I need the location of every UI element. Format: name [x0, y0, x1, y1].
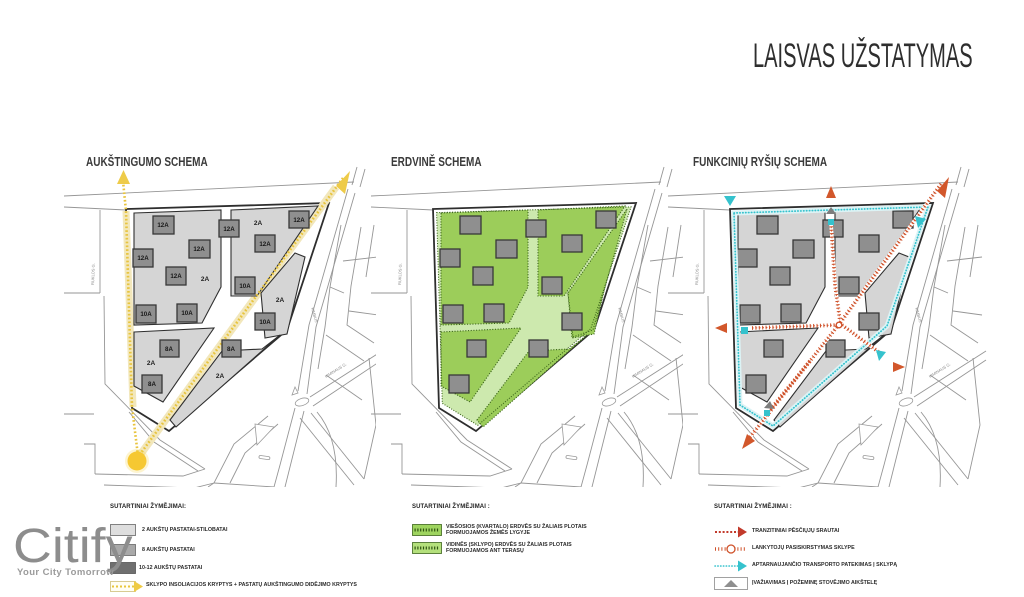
svg-text:10A: 10A — [181, 310, 193, 317]
svg-text:2A: 2A — [254, 220, 263, 227]
svg-text:12A: 12A — [293, 217, 305, 224]
svg-text:12A: 12A — [170, 273, 182, 280]
svg-text:10A: 10A — [239, 283, 251, 290]
svg-text:2A: 2A — [147, 360, 156, 367]
svg-text:12A: 12A — [193, 246, 205, 253]
svg-text:12A: 12A — [259, 241, 271, 248]
svg-text:10A: 10A — [259, 319, 271, 326]
svg-text:2A: 2A — [216, 373, 225, 380]
svg-text:12A: 12A — [223, 226, 235, 233]
svg-text:12A: 12A — [137, 255, 149, 262]
svg-text:2A: 2A — [276, 297, 285, 304]
svg-text:8A: 8A — [227, 346, 235, 353]
svg-text:12A: 12A — [157, 222, 169, 229]
svg-text:8A: 8A — [165, 346, 173, 353]
svg-text:8A: 8A — [148, 381, 156, 388]
svg-text:2A: 2A — [201, 276, 210, 283]
svg-text:10A: 10A — [140, 311, 152, 318]
